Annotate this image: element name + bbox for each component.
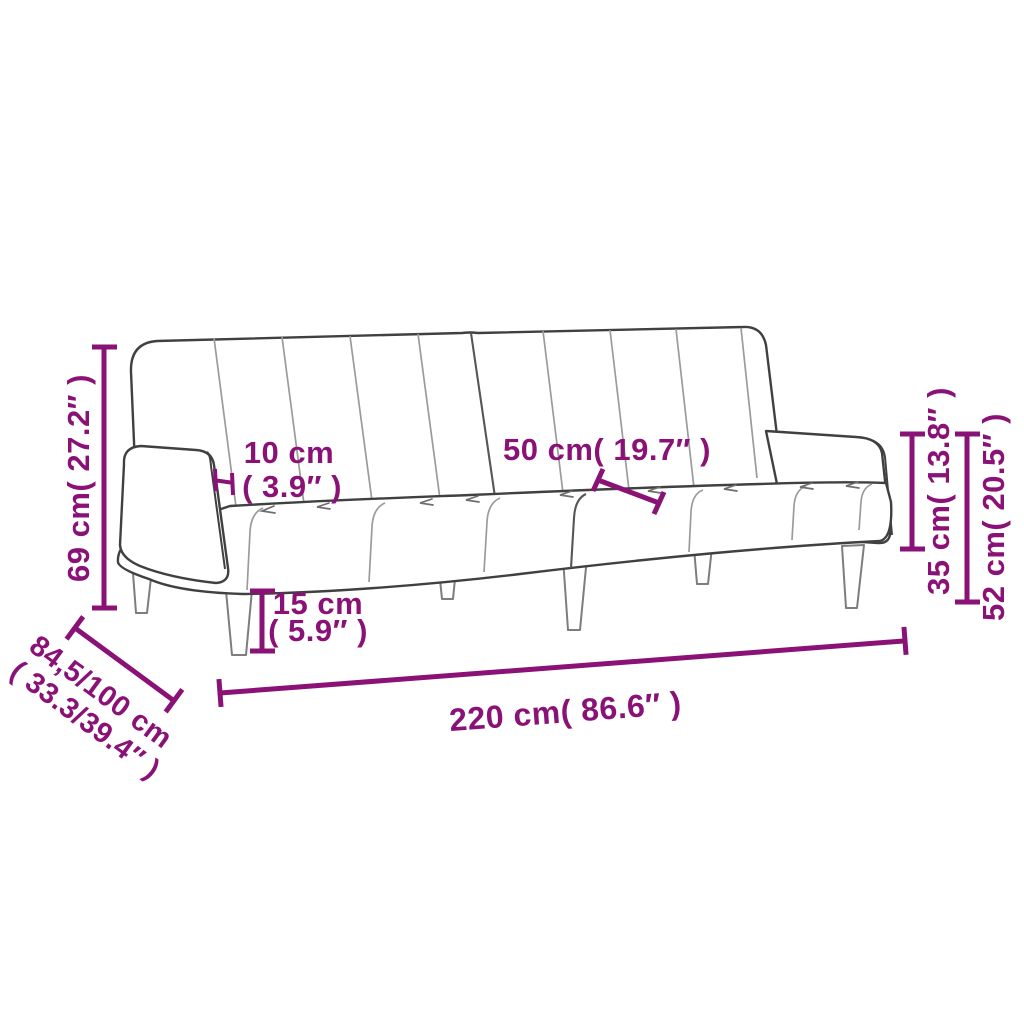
leg-height-label-line2: ( 5.9″ ) (268, 613, 368, 648)
seat-height-label: 35 cm( 13.8″ ) (921, 387, 956, 595)
seat-height-dimension: 35 cm( 13.8″ ) (900, 387, 956, 595)
overall-height-label: 69 cm( 27.2″ ) (61, 374, 96, 582)
sofa-leg (842, 545, 864, 608)
overall-width-label: 220 cm( 86.6″ ) (448, 685, 683, 739)
armrest-width-label-line1: 10 cm (244, 435, 334, 470)
diagram-canvas: 69 cm( 27.2″ ) 10 cm ( 3.9″ ) 50 cm( 19.… (0, 0, 1024, 1024)
leg-height-dimension: 15 cm ( 5.9″ ) (250, 586, 368, 651)
armrest-height-dimension: 52 cm( 20.5″ ) (955, 413, 1011, 621)
sofa-dimension-diagram: 69 cm( 27.2″ ) 10 cm ( 3.9″ ) 50 cm( 19.… (0, 0, 1024, 1024)
armrest-height-label: 52 cm( 20.5″ ) (976, 413, 1011, 621)
armrest-width-label-line2: ( 3.9″ ) (242, 469, 342, 504)
seat-depth-label: 50 cm( 19.7″ ) (503, 432, 711, 467)
overall-depth-dimension: 84,5/100 cm ( 33.3/39.4″ ) (4, 601, 205, 785)
overall-height-dimension: 69 cm( 27.2″ ) (61, 347, 117, 608)
